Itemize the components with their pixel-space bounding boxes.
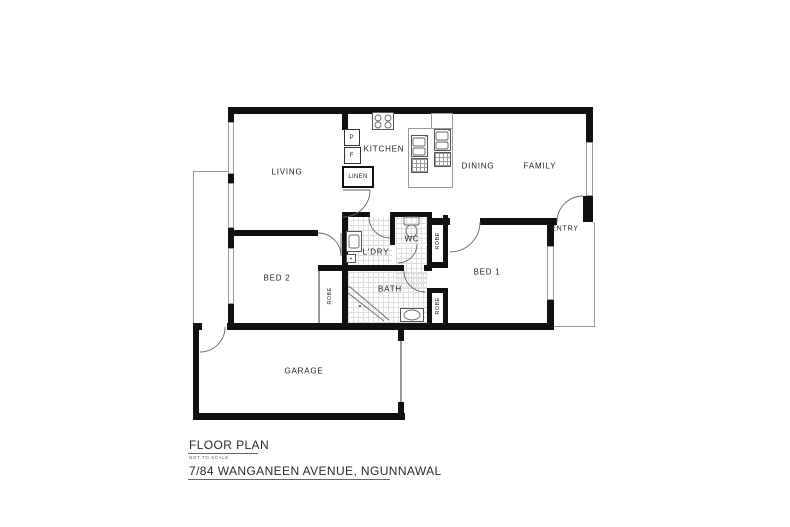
plan-scale-note: NOT TO SCALE [189, 455, 229, 460]
wall-laundry-top [342, 212, 370, 217]
plan-address-underline [188, 479, 390, 480]
wall-kitchen-divider [342, 114, 348, 130]
wall-bed2-top [228, 230, 318, 236]
wall-bath-door-stub [424, 265, 432, 271]
wall-garage-top-b [227, 323, 402, 330]
room-label-bath: BATH [378, 285, 402, 294]
laundry-tub [346, 231, 362, 252]
wall-wc-left [390, 212, 395, 245]
wall-top [228, 107, 593, 114]
entry-porch-right [594, 222, 595, 327]
label-linen: LINEN [348, 174, 367, 180]
laundry-floor-waste [346, 254, 356, 263]
door-arc-bed2 [318, 233, 341, 256]
wall-robe2-right [443, 288, 448, 323]
sink-unit-left [411, 135, 428, 157]
door-arc-entry [557, 196, 583, 222]
wall-garage-left [193, 330, 199, 420]
window-bed1 [547, 246, 554, 300]
dishwasher-right [434, 152, 451, 167]
label-robe-bed2: ROBE [327, 287, 333, 304]
label-robe-bed1-lower: ROBE [435, 297, 441, 314]
entry-porch-bottom [554, 326, 595, 327]
wall-wc-top [390, 212, 432, 217]
room-label-entry: ENTRY [551, 226, 579, 233]
room-label-living: LIVING [271, 168, 302, 177]
window-bed2 [228, 248, 234, 304]
wall-wc-right [427, 212, 432, 268]
cooktop [372, 112, 394, 130]
door-arc-bed1 [450, 222, 480, 252]
wall-garage-right-stub-top [398, 330, 404, 341]
window-living-upper [228, 122, 234, 174]
wall-garage-right-stub-bottom [398, 402, 404, 413]
room-label-bed1: BED 1 [473, 268, 500, 277]
sink-unit-right [434, 129, 451, 151]
wall-left-a [228, 114, 234, 122]
dishwasher-left [411, 158, 428, 173]
plan-title-underline [188, 453, 258, 454]
garage-right-opening-line [400, 341, 402, 402]
wall-right-entry-post [583, 196, 593, 222]
label-robe-bed1-upper: ROBE [435, 232, 441, 249]
porch-outline-top [193, 171, 228, 172]
wall-garage-top-a [193, 323, 202, 330]
wall-garage-bottom [193, 413, 405, 420]
room-label-bed2: BED 2 [263, 274, 290, 283]
wall-left-b [228, 174, 234, 183]
floor-plan-canvas: LIVING KITCHEN DINING FAMILY BED 2 BED 1… [0, 0, 790, 527]
label-pantry: P [350, 135, 355, 141]
door-and-fixture-linework [0, 0, 790, 527]
window-living-lower [228, 183, 234, 228]
wall-mid-divider [318, 265, 404, 271]
label-fridge: F [350, 153, 354, 159]
room-label-garage: GARAGE [284, 367, 323, 376]
room-label-laundry: L'DRY [363, 248, 390, 257]
wall-bed1-right-b [547, 300, 554, 330]
room-label-family: FAMILY [524, 162, 557, 171]
wall-bed2robe-bath [342, 265, 348, 323]
vanity [400, 308, 424, 322]
room-label-wc: WC [405, 235, 420, 244]
door-arc-garage [200, 327, 225, 352]
window-family [586, 142, 593, 196]
kitchen-bench-return [431, 113, 453, 129]
porch-outline-left [193, 171, 194, 323]
plan-address: 7/84 WANGANEEN AVENUE, NGUNNAWAL [189, 464, 442, 478]
wall-right-upper [586, 114, 593, 142]
wall-bed1-top-b [480, 218, 557, 225]
room-label-dining: DINING [462, 162, 495, 171]
wall-robe1-right [443, 215, 448, 268]
wall-bottom-main [402, 323, 554, 330]
plan-title: FLOOR PLAN [189, 438, 269, 452]
wall-robe2-left [427, 288, 432, 323]
bed2-robe-front [318, 271, 320, 323]
room-label-kitchen: KITCHEN [364, 145, 405, 154]
